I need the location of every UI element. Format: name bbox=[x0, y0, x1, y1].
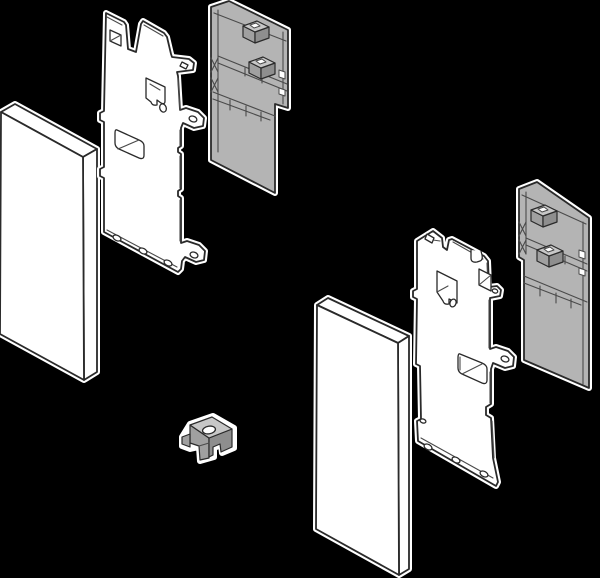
panel-front-face bbox=[0, 112, 84, 380]
panel-side-face bbox=[83, 149, 97, 380]
exploded-diagram bbox=[0, 0, 600, 578]
clamp-wing bbox=[182, 434, 190, 447]
tab-notch bbox=[471, 250, 482, 262]
center-clamp bbox=[182, 416, 234, 461]
right-holder bbox=[519, 182, 589, 388]
left-holder bbox=[211, 1, 288, 193]
left-front-panel bbox=[0, 104, 97, 380]
left-bracket bbox=[100, 13, 205, 272]
panel-front-face bbox=[316, 305, 399, 575]
right-front-panel bbox=[316, 298, 409, 575]
right-bracket bbox=[413, 231, 514, 486]
